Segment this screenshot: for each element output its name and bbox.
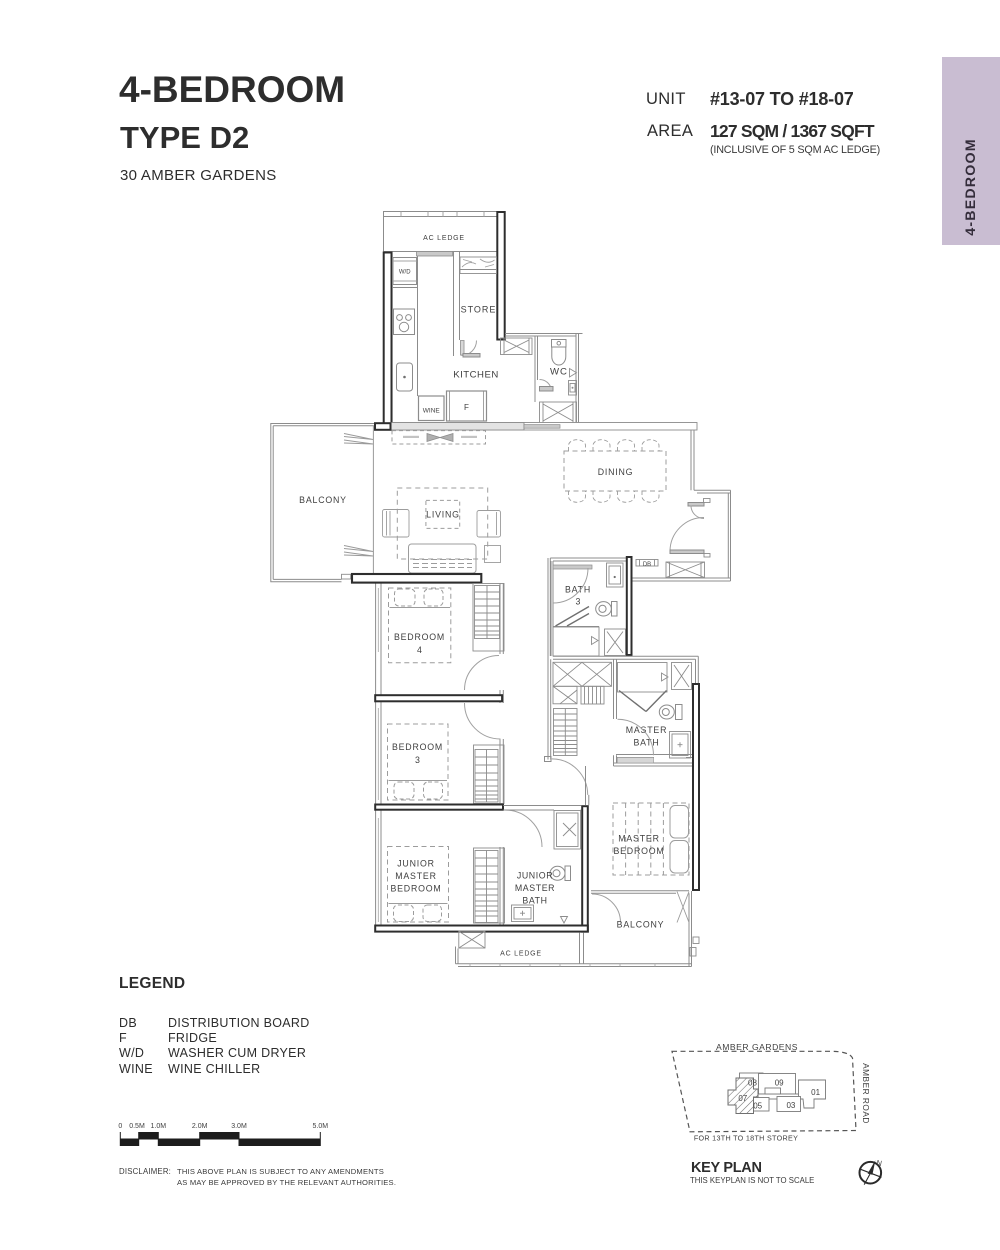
svg-text:JUNIOR: JUNIOR (397, 859, 435, 869)
svg-text:BALCONY: BALCONY (617, 920, 665, 930)
svg-text:3: 3 (576, 597, 581, 607)
svg-text:W/D: W/D (399, 270, 411, 276)
svg-text:3: 3 (415, 755, 420, 765)
svg-text:STORE: STORE (461, 305, 497, 315)
svg-text:JUNIOR: JUNIOR (517, 871, 553, 881)
svg-text:BATH: BATH (633, 738, 659, 748)
svg-text:WC: WC (550, 367, 568, 378)
svg-text:08: 08 (748, 1079, 757, 1088)
svg-text:MASTER: MASTER (395, 871, 436, 881)
svg-text:BATH: BATH (522, 896, 547, 906)
svg-text:BEDROOM: BEDROOM (390, 884, 441, 894)
svg-text:BALCONY: BALCONY (299, 495, 347, 505)
svg-text:LIVING: LIVING (426, 510, 460, 520)
svg-text:FOR 13TH TO 18TH STOREY: FOR 13TH TO 18TH STOREY (694, 1134, 798, 1143)
svg-text:07: 07 (738, 1094, 747, 1103)
svg-text:MASTER: MASTER (515, 883, 555, 893)
svg-text:KITCHEN: KITCHEN (453, 370, 499, 381)
svg-text:0.5M: 0.5M (129, 1123, 145, 1130)
svg-text:5.0M: 5.0M (313, 1123, 329, 1130)
svg-text:3.0M: 3.0M (231, 1123, 247, 1130)
svg-text:AC LEDGE: AC LEDGE (423, 235, 465, 242)
svg-text:0: 0 (118, 1123, 122, 1130)
svg-text:BEDROOM: BEDROOM (394, 632, 445, 642)
svg-text:AMBER GARDENS: AMBER GARDENS (716, 1042, 798, 1052)
svg-text:DB: DB (643, 562, 651, 568)
svg-text:MASTER: MASTER (618, 834, 659, 844)
svg-text:F: F (464, 403, 469, 412)
svg-text:01: 01 (811, 1088, 820, 1097)
svg-text:2.0M: 2.0M (192, 1123, 208, 1130)
svg-text:WINE: WINE (423, 408, 441, 415)
svg-text:09: 09 (775, 1079, 784, 1088)
svg-text:05: 05 (753, 1102, 762, 1111)
svg-text:03: 03 (786, 1101, 795, 1110)
svg-text:1.0M: 1.0M (151, 1123, 167, 1130)
svg-text:BEDROOM: BEDROOM (613, 846, 664, 856)
svg-text:AMBER ROAD: AMBER ROAD (861, 1063, 871, 1124)
svg-text:DINING: DINING (598, 467, 634, 477)
svg-text:AC LEDGE: AC LEDGE (500, 951, 542, 958)
svg-text:BEDROOM: BEDROOM (392, 742, 443, 752)
svg-text:4: 4 (417, 645, 422, 655)
svg-text:N: N (876, 1158, 883, 1168)
